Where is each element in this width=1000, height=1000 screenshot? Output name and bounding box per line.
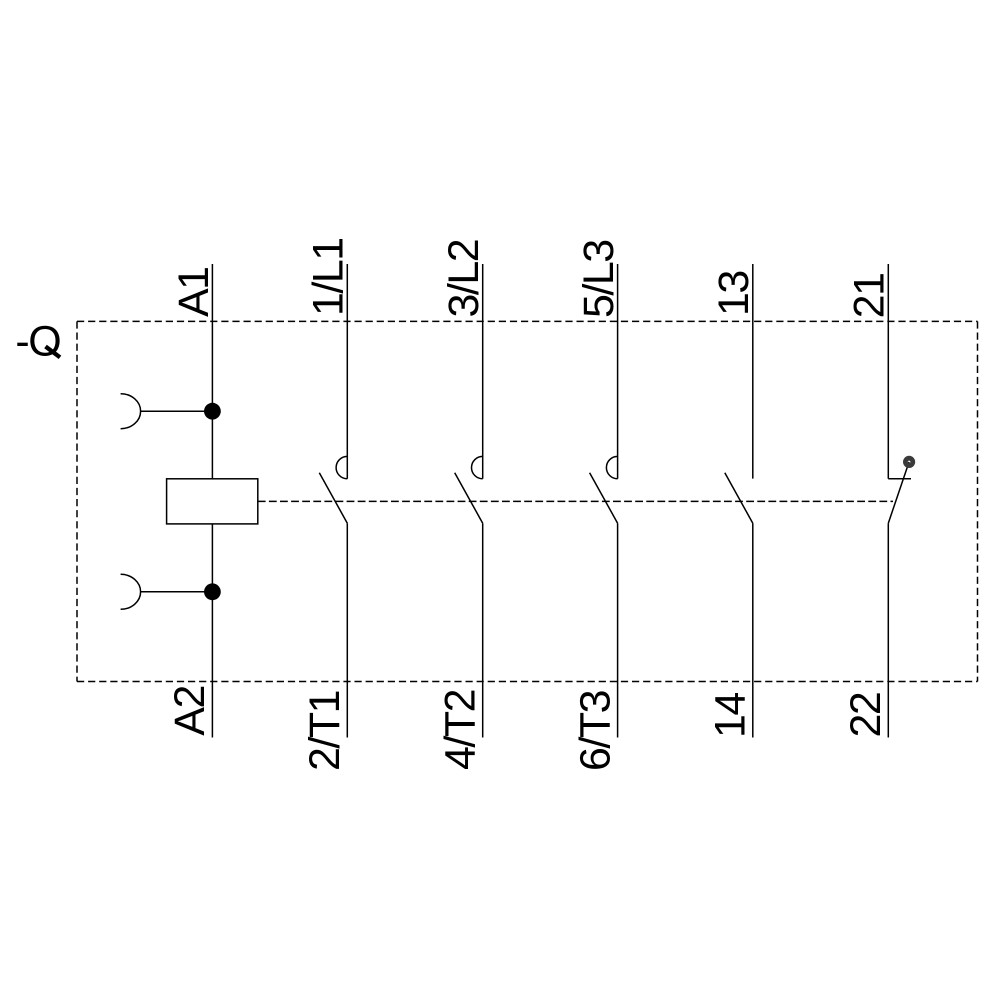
svg-text:5/L3: 5/L3 [575,240,623,318]
svg-text:21: 21 [846,273,894,318]
svg-text:1/L1: 1/L1 [305,238,353,316]
svg-text:14: 14 [707,693,755,738]
svg-text:6/T3: 6/T3 [571,690,619,771]
svg-text:-O: -O [15,318,60,366]
svg-text:2/T1: 2/T1 [301,691,349,771]
svg-text:A2: A2 [166,686,214,736]
svg-text:4/T2: 4/T2 [437,690,485,770]
svg-text:3/L2: 3/L2 [440,240,488,318]
svg-text:22: 22 [842,693,890,738]
svg-text:A1: A1 [170,267,218,317]
svg-text:13: 13 [710,271,758,316]
